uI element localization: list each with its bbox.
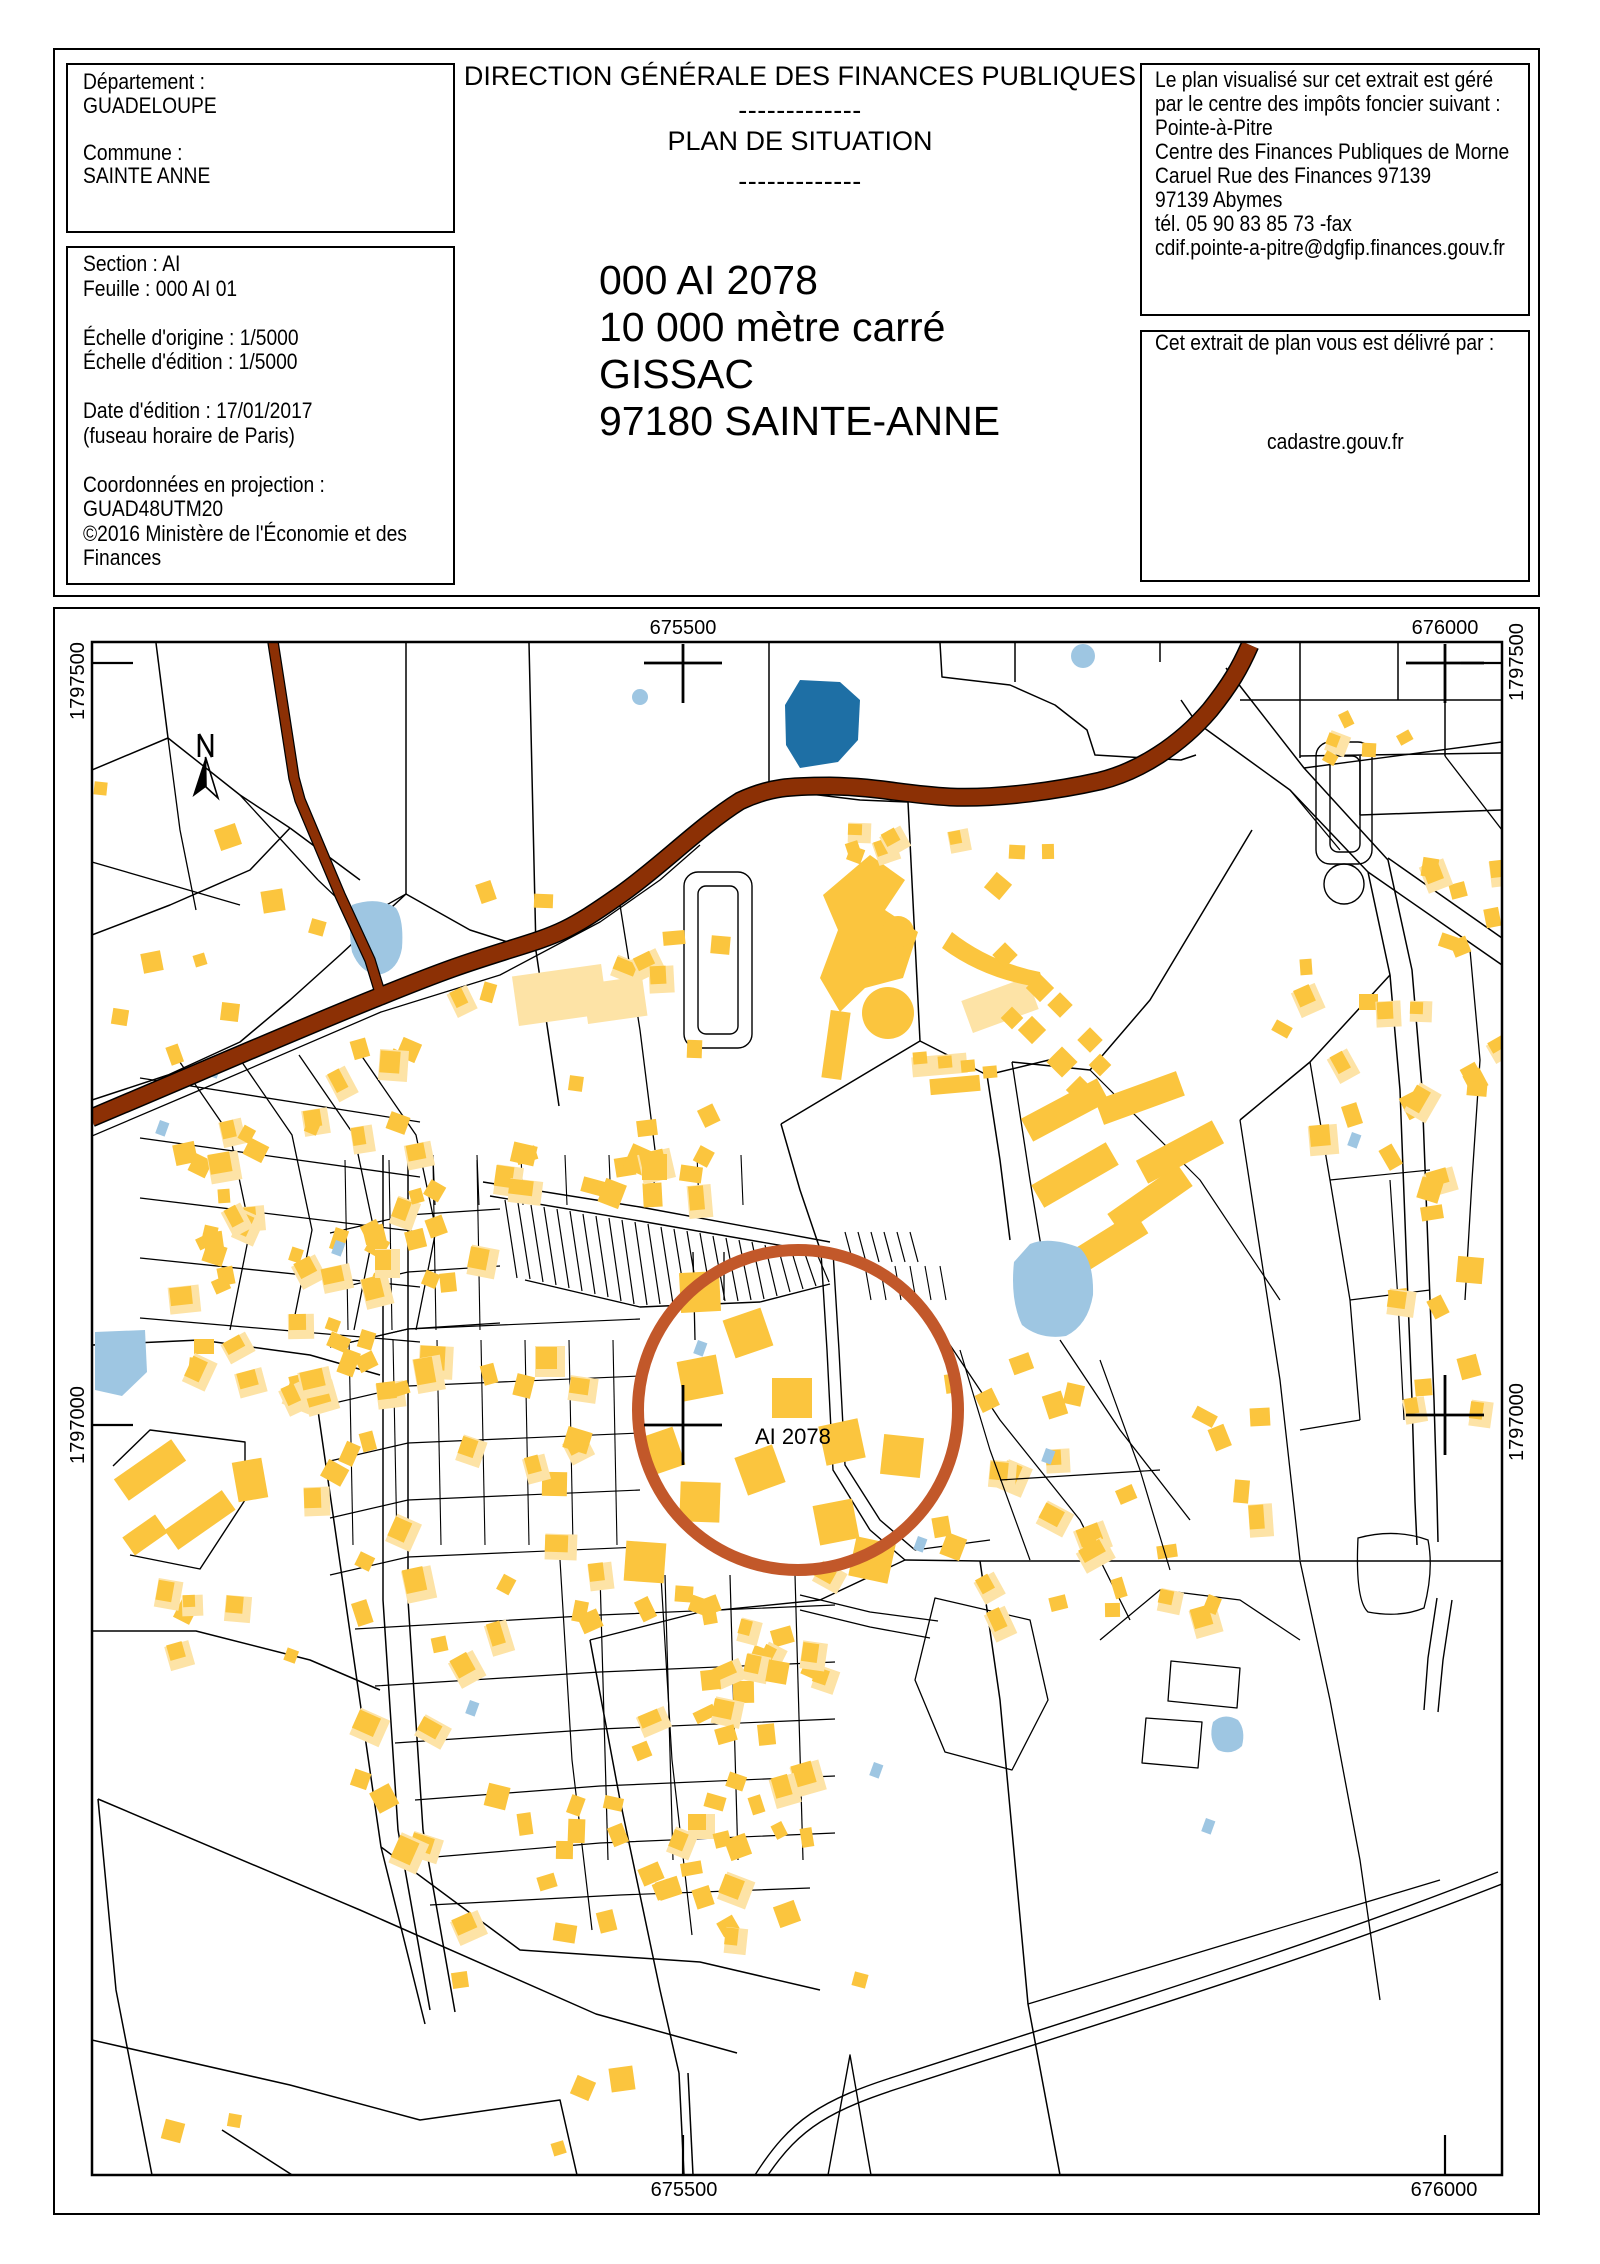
svg-text:675500: 675500: [651, 2179, 718, 2201]
svg-text:AI 2078: AI 2078: [755, 1424, 831, 1449]
svg-text:676000: 676000: [1411, 2179, 1478, 2201]
svg-text:1797500: 1797500: [1506, 623, 1528, 701]
svg-text:675500: 675500: [650, 617, 717, 639]
svg-text:1797000: 1797000: [67, 1386, 89, 1464]
svg-text:676000: 676000: [1412, 617, 1479, 639]
svg-text:1797000: 1797000: [1506, 1383, 1528, 1461]
svg-text:1797500: 1797500: [67, 642, 89, 720]
